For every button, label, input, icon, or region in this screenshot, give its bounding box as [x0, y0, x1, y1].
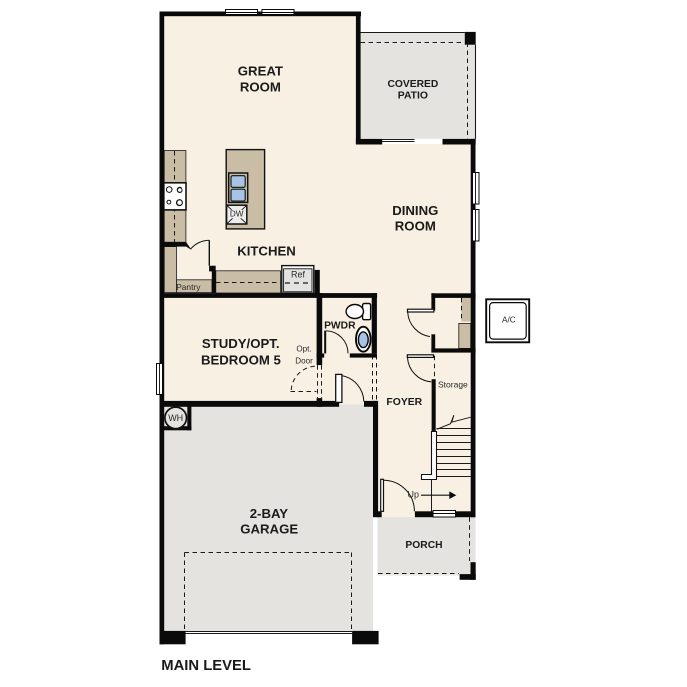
svg-text:KITCHEN: KITCHEN	[237, 243, 296, 258]
svg-text:DINING: DINING	[392, 203, 438, 218]
svg-text:STUDY/OPT.: STUDY/OPT.	[202, 336, 280, 351]
svg-text:Pantry: Pantry	[176, 282, 201, 292]
svg-text:COVERED: COVERED	[387, 79, 438, 90]
svg-text:Storage: Storage	[438, 379, 468, 389]
svg-text:ROOM: ROOM	[240, 80, 281, 95]
svg-text:ROOM: ROOM	[395, 218, 436, 233]
svg-text:BEDROOM 5: BEDROOM 5	[201, 353, 281, 368]
svg-text:PATIO: PATIO	[398, 91, 428, 102]
svg-text:2-BAY: 2-BAY	[250, 506, 289, 521]
svg-text:Door: Door	[295, 356, 313, 365]
svg-text:PORCH: PORCH	[405, 540, 442, 551]
svg-text:WH: WH	[168, 413, 183, 423]
svg-text:Opt.: Opt.	[296, 345, 311, 354]
svg-text:FOYER: FOYER	[386, 397, 422, 408]
svg-text:GARAGE: GARAGE	[240, 521, 298, 536]
svg-text:Ref: Ref	[291, 270, 306, 280]
svg-text:GREAT: GREAT	[238, 64, 283, 79]
svg-text:Up: Up	[408, 490, 420, 500]
svg-text:A/C: A/C	[502, 315, 516, 325]
svg-text:MAIN LEVEL: MAIN LEVEL	[161, 658, 251, 674]
svg-text:DW: DW	[230, 210, 244, 219]
svg-text:PWDR: PWDR	[324, 320, 356, 331]
